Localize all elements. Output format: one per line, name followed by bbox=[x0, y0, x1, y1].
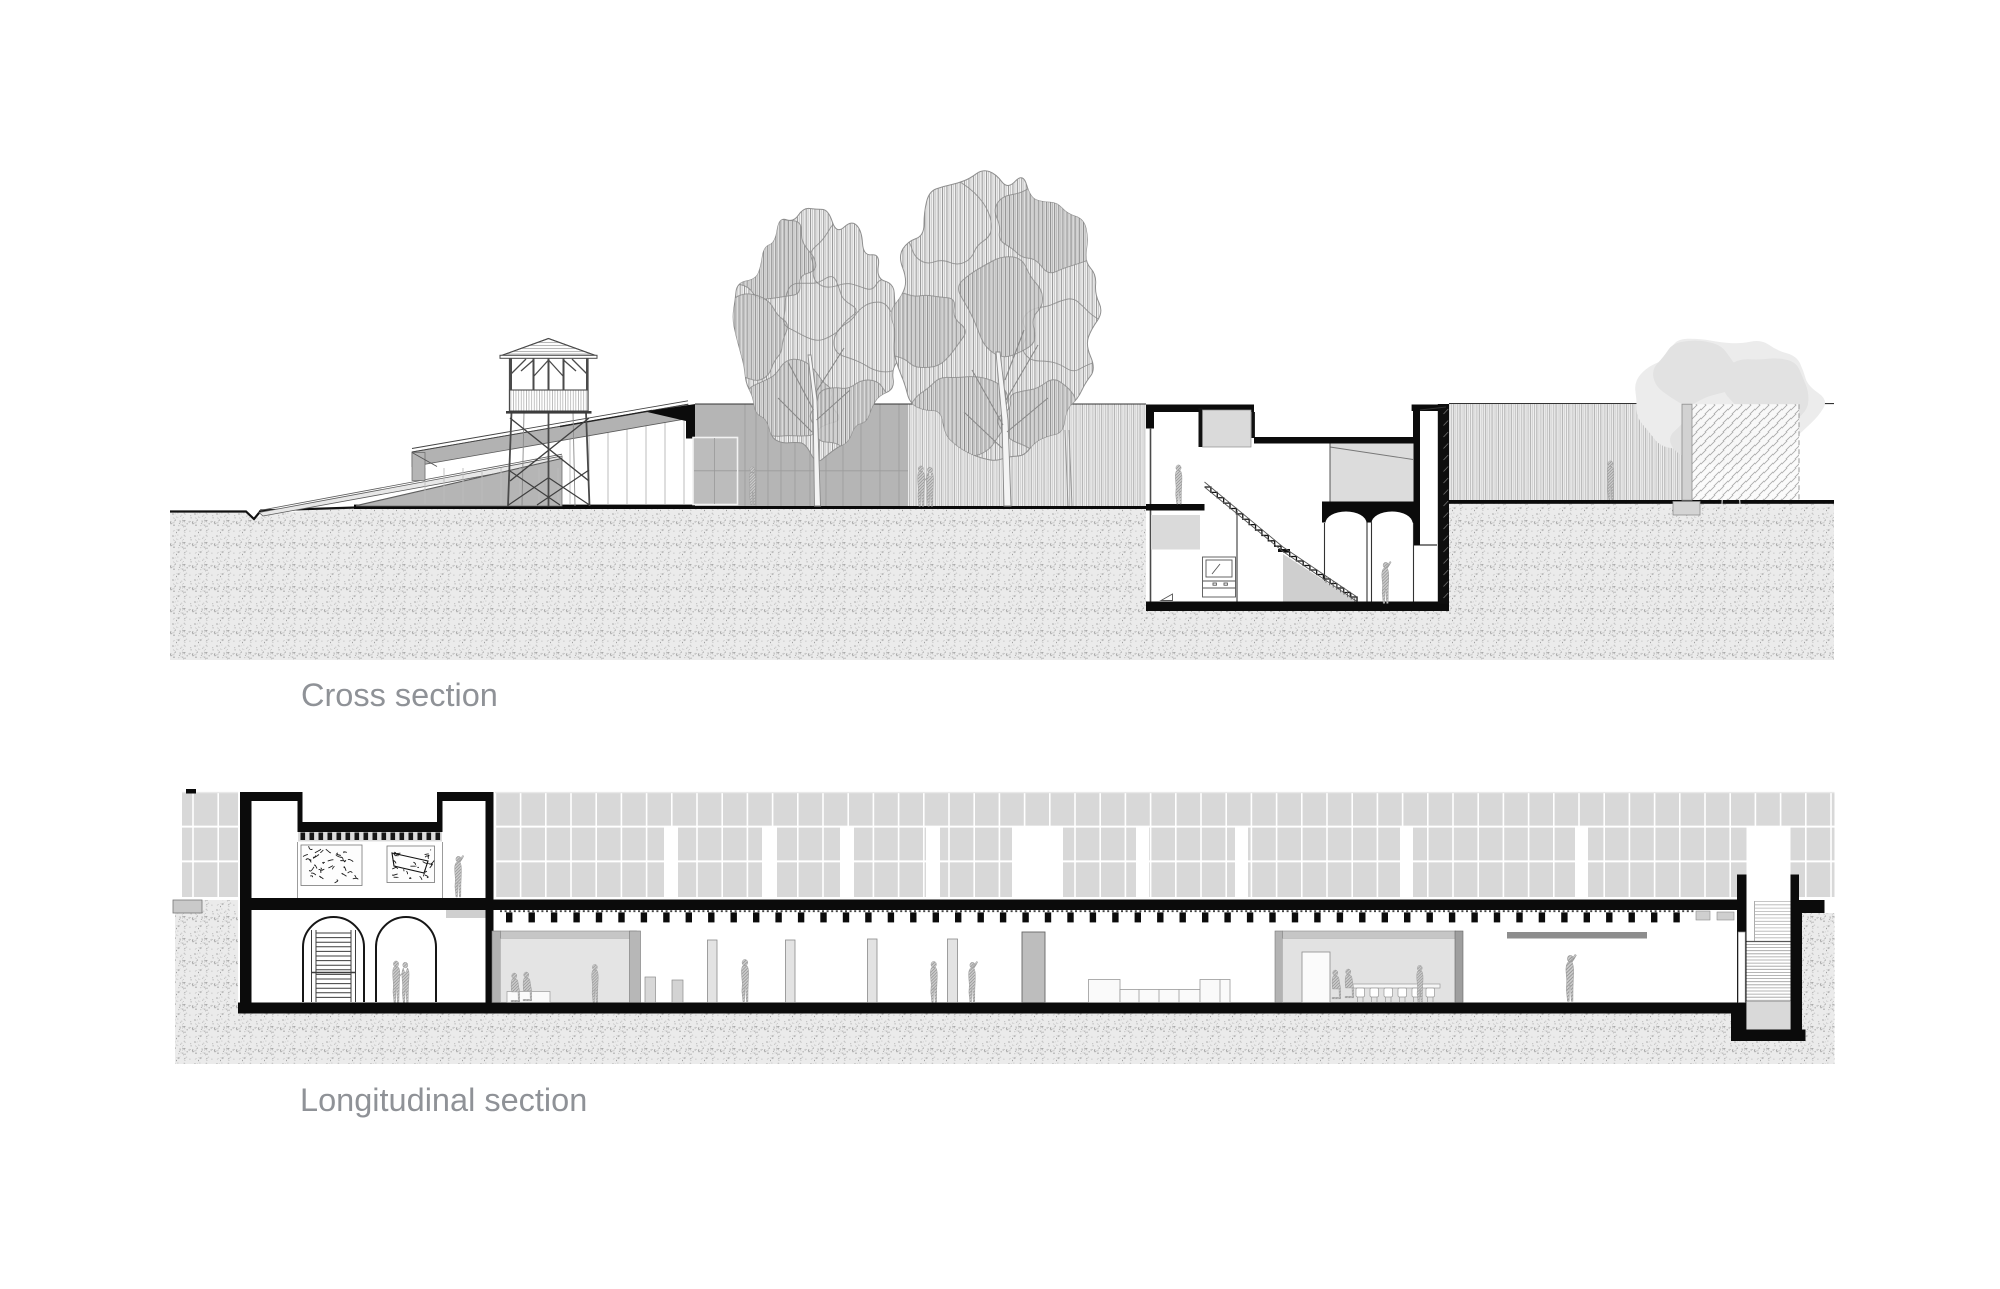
svg-text:Longitudinal section: Longitudinal section bbox=[300, 1082, 587, 1118]
svg-text:Cross section: Cross section bbox=[301, 677, 498, 713]
